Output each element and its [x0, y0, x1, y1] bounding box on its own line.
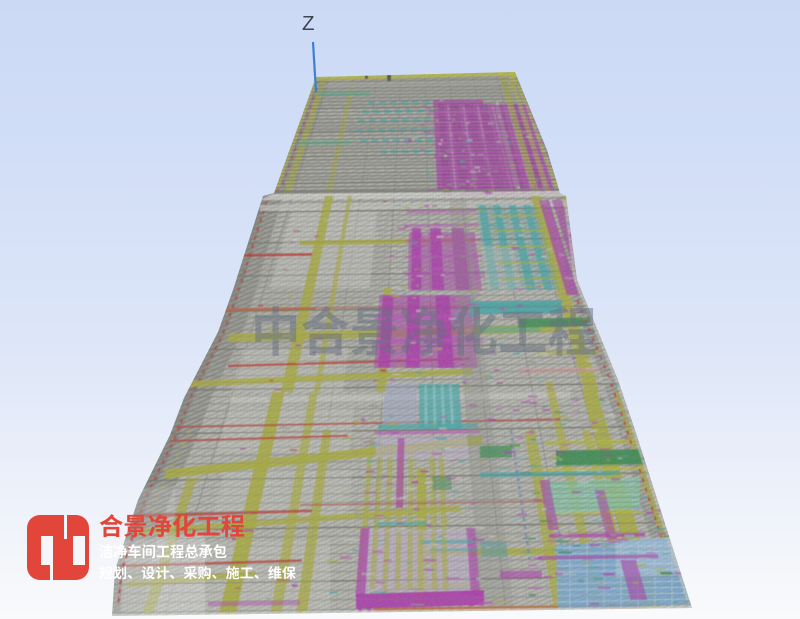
svg-text:Z: Z — [302, 12, 315, 35]
